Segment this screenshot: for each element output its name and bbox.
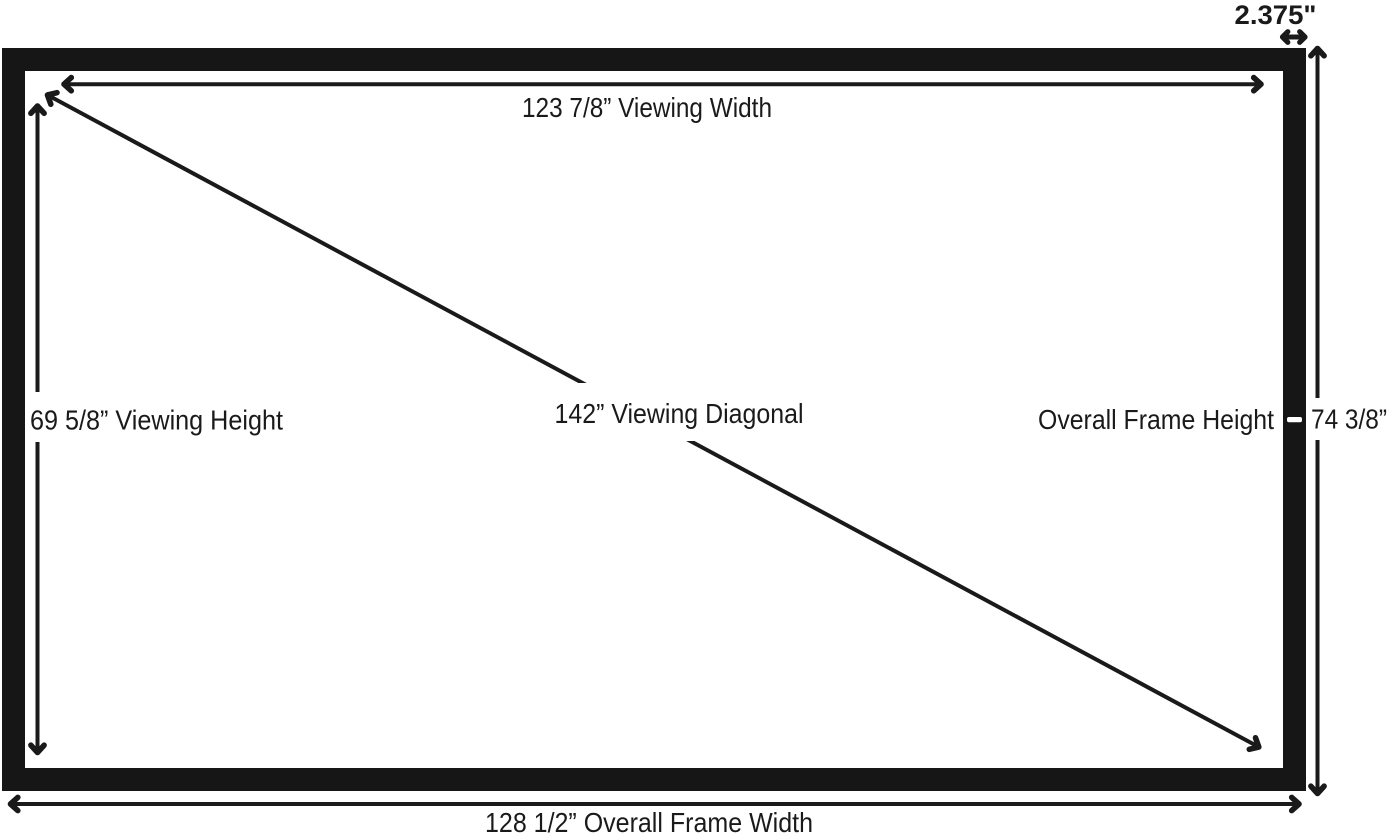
svg-text:128 1/2” Overall Frame Width: 128 1/2” Overall Frame Width <box>485 807 813 835</box>
svg-text:142” Viewing Diagonal: 142” Viewing Diagonal <box>555 398 804 429</box>
svg-text:74 3/8”: 74 3/8” <box>1311 404 1387 435</box>
svg-text:Overall Frame Height: Overall Frame Height <box>1038 404 1274 435</box>
svg-text:2.375": 2.375" <box>1235 0 1317 30</box>
svg-text:123 7/8” Viewing Width: 123 7/8” Viewing Width <box>522 92 772 123</box>
svg-text:69 5/8” Viewing Height: 69 5/8” Viewing Height <box>30 405 283 436</box>
